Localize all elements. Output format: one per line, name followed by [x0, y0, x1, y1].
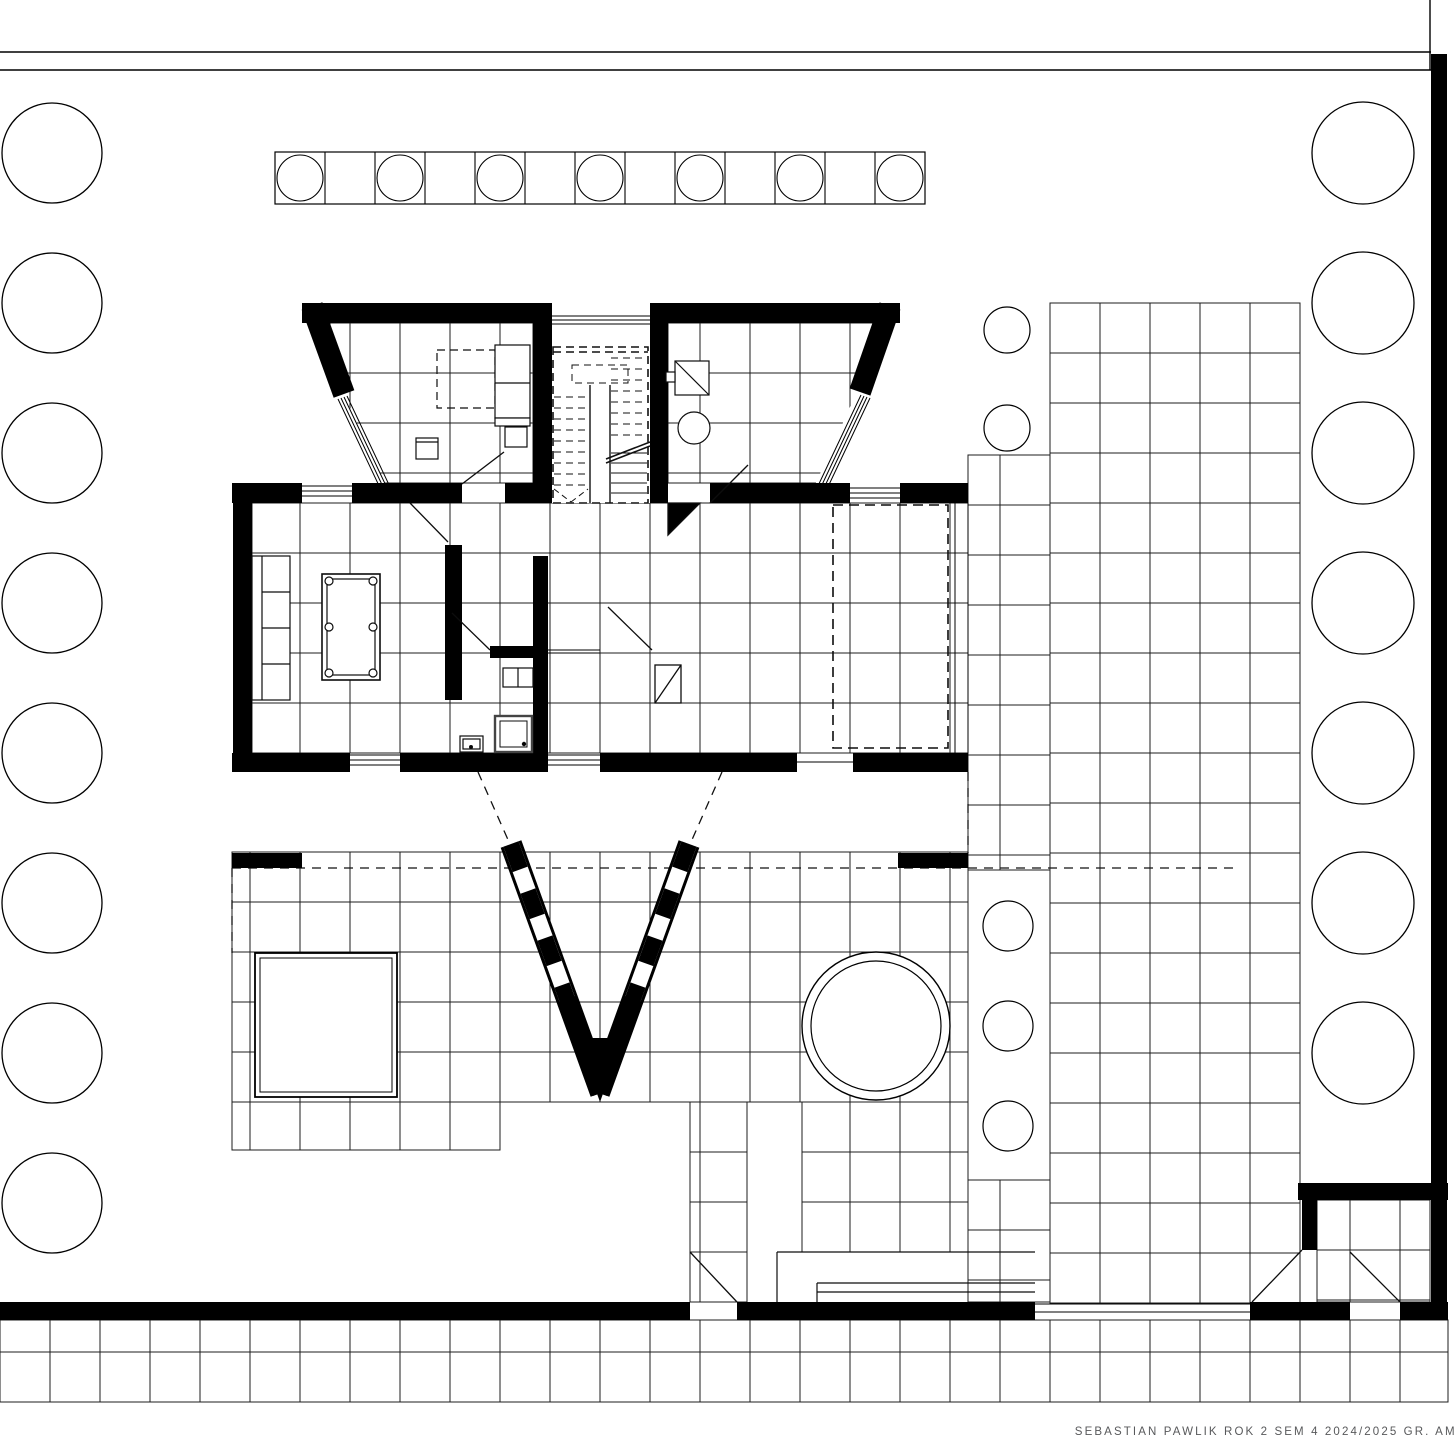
pool: [255, 953, 397, 1097]
tile-grids: [0, 303, 1448, 1402]
left-tree-row: [2, 103, 102, 1253]
low-wall-lines: [1035, 1304, 1250, 1312]
sofa: [252, 556, 290, 700]
title-block: SEBASTIAN PAWLIK ROK 2 SEM 4 2024/2025 G…: [1075, 1424, 1430, 1438]
kitchen-island-circles: [983, 901, 1033, 1151]
ramp-dashed-ext-right: [691, 772, 722, 842]
window-bottom-2: [548, 755, 600, 765]
planter-strip: [275, 152, 925, 204]
window-stair-top: [552, 316, 650, 324]
doors: [410, 452, 1400, 1302]
bathroom-sink: [503, 668, 533, 687]
door-hall: [608, 607, 652, 650]
door-vestibule-1: [1252, 1250, 1302, 1302]
floor-plan-svg: [0, 0, 1455, 1455]
round-sink: [678, 412, 710, 444]
bed-dashed-bedroom1: [437, 350, 495, 408]
mask-right-slant: [815, 320, 902, 485]
windows: [302, 316, 1250, 1312]
door-leaf-filled: [668, 503, 700, 535]
door-bedroom1: [462, 452, 504, 484]
toilet: [460, 736, 483, 752]
window-mid-right: [850, 488, 900, 498]
glass-wall-right-room: [955, 503, 968, 753]
billiard-table: [322, 574, 380, 680]
door-path: [690, 1252, 737, 1302]
ramp-dashed-ext-left: [478, 772, 509, 842]
planter-circles: [984, 307, 1030, 451]
white-masks: [328, 320, 902, 503]
hot-tub: [802, 952, 950, 1100]
desk: [416, 438, 438, 459]
right-tree-row: [1312, 102, 1414, 1104]
nightstand: [505, 427, 527, 447]
door-billiard: [410, 503, 448, 542]
page-frame: [0, 0, 1431, 70]
wardrobe: [495, 345, 530, 426]
kitchen-counter: [777, 1252, 1035, 1302]
dashed-site-lines: [232, 772, 1240, 953]
building-walls: [0, 54, 1448, 1320]
window-bottom-1: [350, 755, 400, 765]
door-vestibule-2: [1350, 1252, 1400, 1302]
floor-plan-canvas: SEBASTIAN PAWLIK ROK 2 SEM 4 2024/2025 G…: [0, 0, 1455, 1455]
shower: [495, 716, 532, 752]
threshold-hall: [548, 650, 600, 653]
right-boundary-wall: [1431, 54, 1447, 1320]
washing-machine: [666, 361, 709, 395]
